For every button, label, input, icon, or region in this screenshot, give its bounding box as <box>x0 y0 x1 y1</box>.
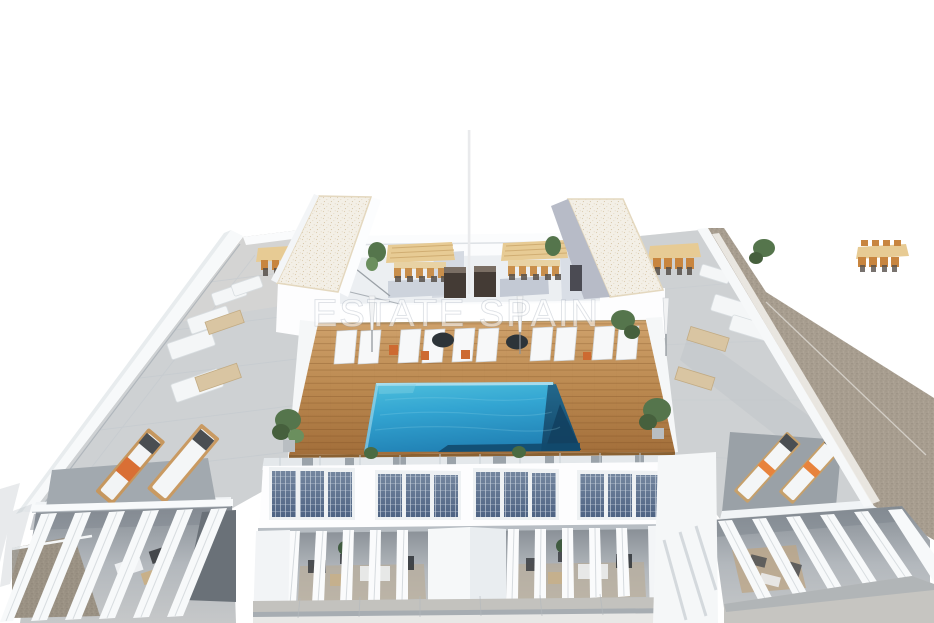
svg-text:ESTATE SPAIN: ESTATE SPAIN <box>312 293 600 335</box>
